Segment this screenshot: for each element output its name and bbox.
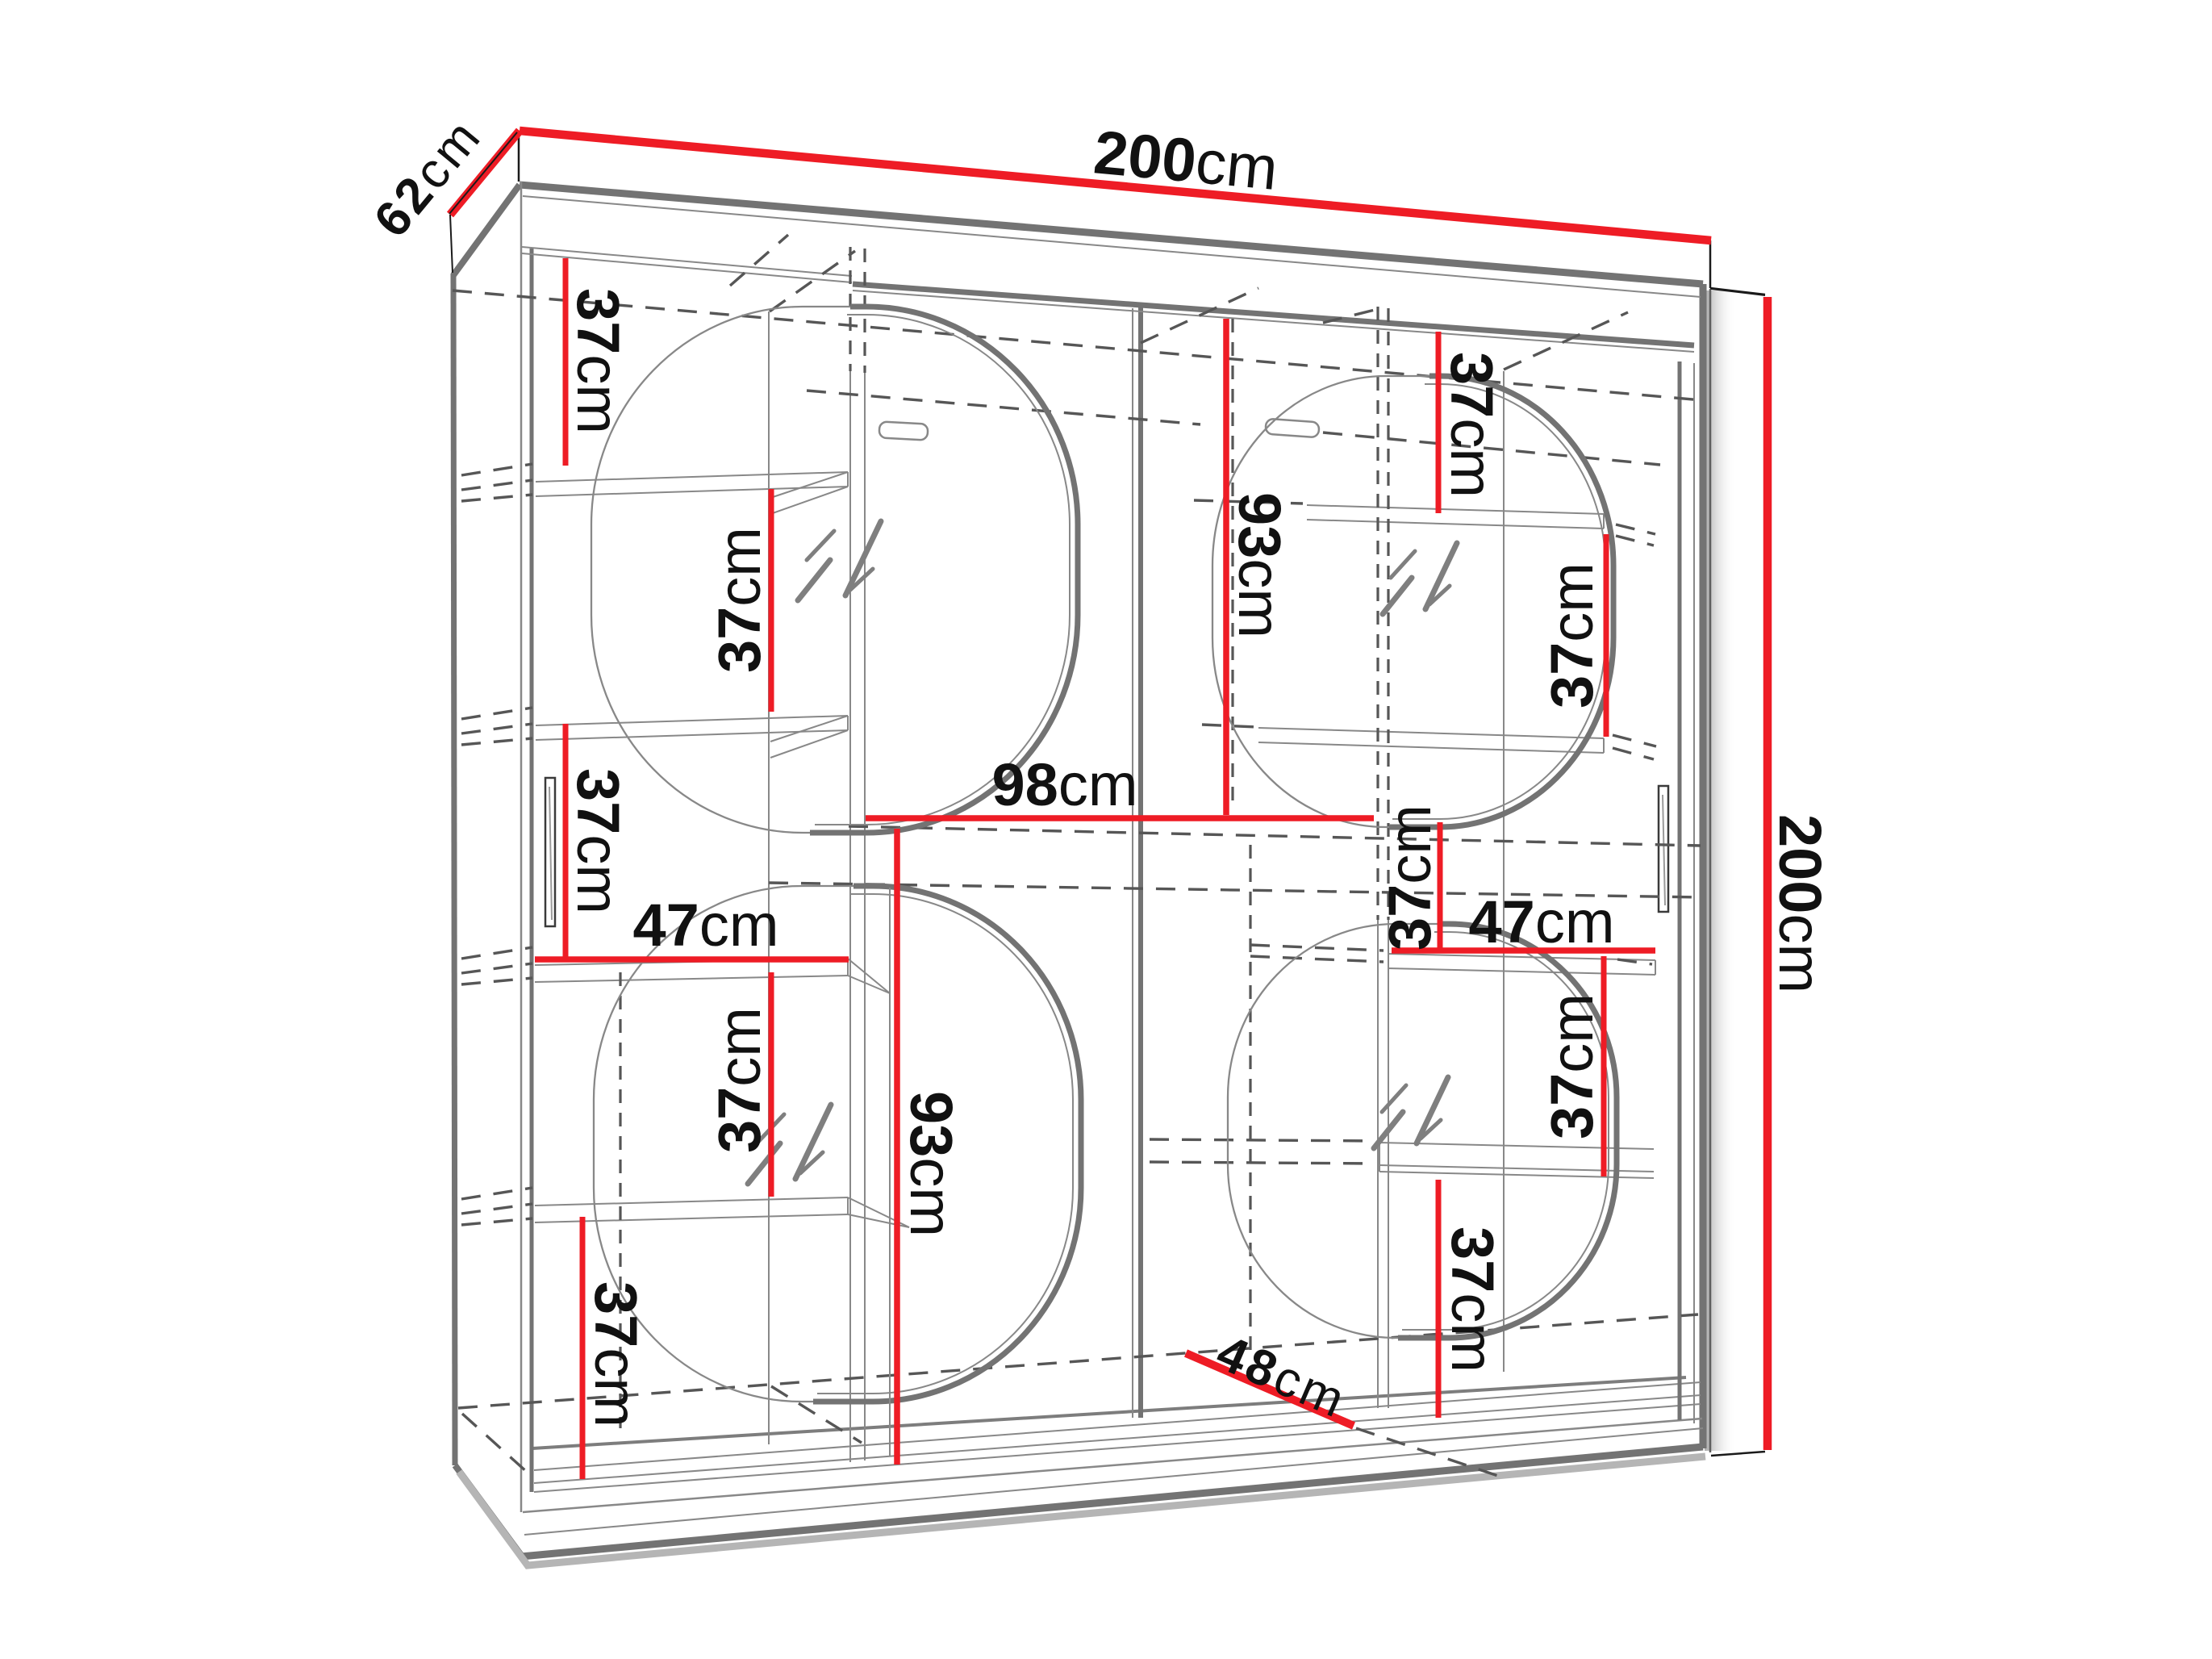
svg-text:37cm: 37cm [582, 1281, 649, 1427]
svg-text:98cm: 98cm [992, 751, 1138, 818]
svg-text:47cm: 47cm [633, 892, 779, 959]
svg-text:37cm: 37cm [565, 288, 632, 434]
svg-text:37cm: 37cm [1438, 352, 1505, 498]
svg-text:37cm: 37cm [1439, 1226, 1506, 1373]
svg-text:37cm: 37cm [1376, 804, 1443, 951]
svg-text:47cm: 47cm [1469, 888, 1615, 955]
svg-text:37cm: 37cm [1538, 562, 1605, 708]
svg-text:37cm: 37cm [706, 527, 773, 673]
svg-text:200cm: 200cm [1767, 814, 1834, 993]
svg-text:93cm: 93cm [1226, 492, 1293, 638]
svg-text:37cm: 37cm [706, 1007, 773, 1153]
svg-text:37cm: 37cm [565, 768, 632, 914]
svg-text:37cm: 37cm [1538, 993, 1605, 1139]
svg-text:93cm: 93cm [898, 1091, 965, 1237]
